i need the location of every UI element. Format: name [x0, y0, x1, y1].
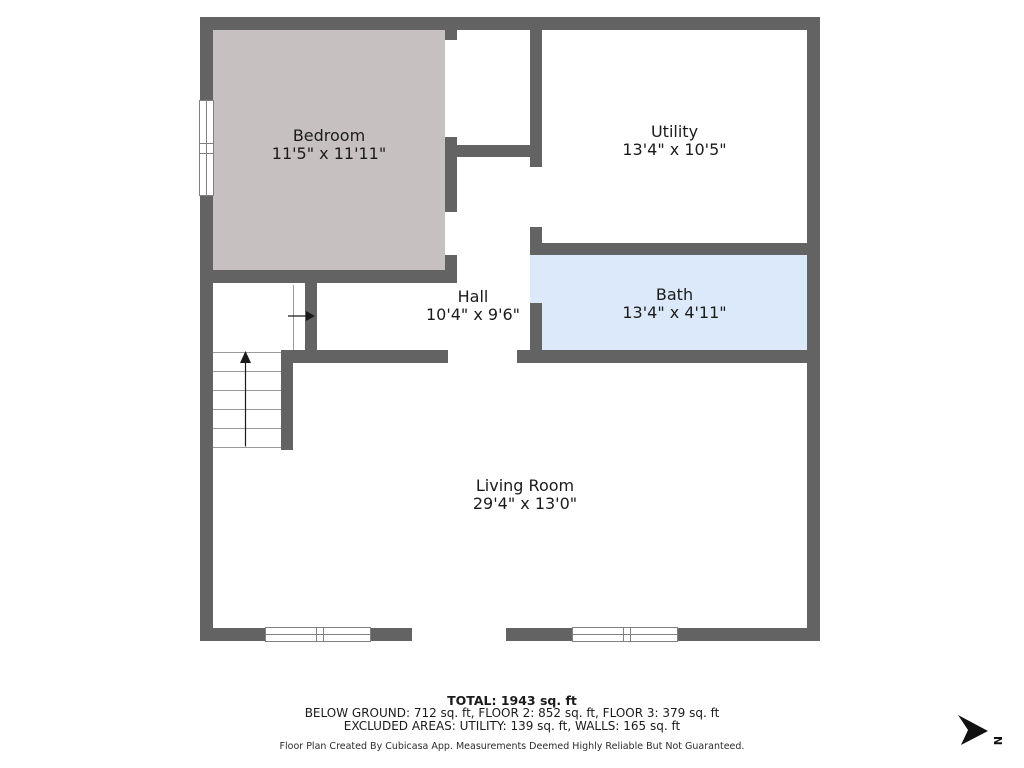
- floorplan-canvas: Bedroom 11'5" x 11'11" Utility 13'4" x 1…: [0, 0, 1024, 768]
- room-dimensions: 13'4" x 4'11": [542, 304, 807, 322]
- room-dimensions: 13'4" x 10'5": [542, 141, 807, 159]
- room-name: Bedroom: [213, 127, 445, 145]
- wall-bedroom-right-stub: [445, 28, 457, 40]
- room-name: Utility: [542, 123, 807, 141]
- bedroom-label: Bedroom 11'5" x 11'11": [213, 127, 445, 163]
- room-name: Hall: [403, 288, 543, 306]
- wall-utility-bottom: [530, 243, 820, 255]
- hall-living-opening: [448, 351, 517, 363]
- living-room-label: Living Room 29'4" x 13'0": [240, 477, 810, 513]
- room-dimensions: 10'4" x 9'6": [403, 306, 543, 324]
- wall-stairs-right: [281, 350, 293, 450]
- window-mullion: [316, 628, 317, 641]
- utility-label: Utility 13'4" x 10'5": [542, 123, 807, 159]
- disclaimer-text: Floor Plan Created By Cubicasa App. Meas…: [0, 742, 1024, 752]
- window-glass-line: [266, 634, 370, 635]
- window-glass-line: [573, 634, 677, 635]
- wall-outer-right: [807, 17, 820, 641]
- window-mullion: [623, 628, 624, 641]
- entry-door-opening: [412, 628, 506, 641]
- stairs-up-arrow-icon: [233, 350, 259, 450]
- window-bottom-left-pair: [265, 627, 371, 642]
- floor-areas-text: BELOW GROUND: 712 sq. ft, FLOOR 2: 852 s…: [0, 707, 1024, 720]
- excluded-areas-text: EXCLUDED AREAS: UTILITY: 139 sq. ft, WAL…: [0, 720, 1024, 733]
- window-glass-line: [206, 101, 207, 195]
- compass-north-icon: N: [945, 708, 1010, 753]
- bath-label: Bath 13'4" x 4'11": [542, 286, 807, 322]
- window-mullion: [200, 153, 213, 154]
- window-mullion: [200, 143, 213, 144]
- wall-hall-top-connector: [445, 145, 542, 157]
- wall-bedroom-bottom: [200, 270, 457, 283]
- compass-n-letter: N: [991, 736, 1004, 745]
- room-name: Bath: [542, 286, 807, 304]
- window-mullion: [630, 628, 631, 641]
- room-name: Living Room: [240, 477, 810, 495]
- hall-label: Hall 10'4" x 9'6": [403, 288, 543, 324]
- room-dimensions: 29'4" x 13'0": [240, 495, 810, 513]
- room-dimensions: 11'5" x 11'11": [213, 145, 445, 163]
- wall-outer-top: [200, 17, 820, 30]
- wall-utility-left-top: [530, 30, 542, 167]
- wall-hall-bath-bottom: [517, 350, 820, 363]
- window-left-wall: [199, 100, 214, 196]
- stairs-right-arrow-icon: [286, 308, 318, 324]
- area-summary: TOTAL: 1943 sq. ft BELOW GROUND: 712 sq.…: [0, 694, 1024, 752]
- window-bottom-right-pair: [572, 627, 678, 642]
- window-mullion: [323, 628, 324, 641]
